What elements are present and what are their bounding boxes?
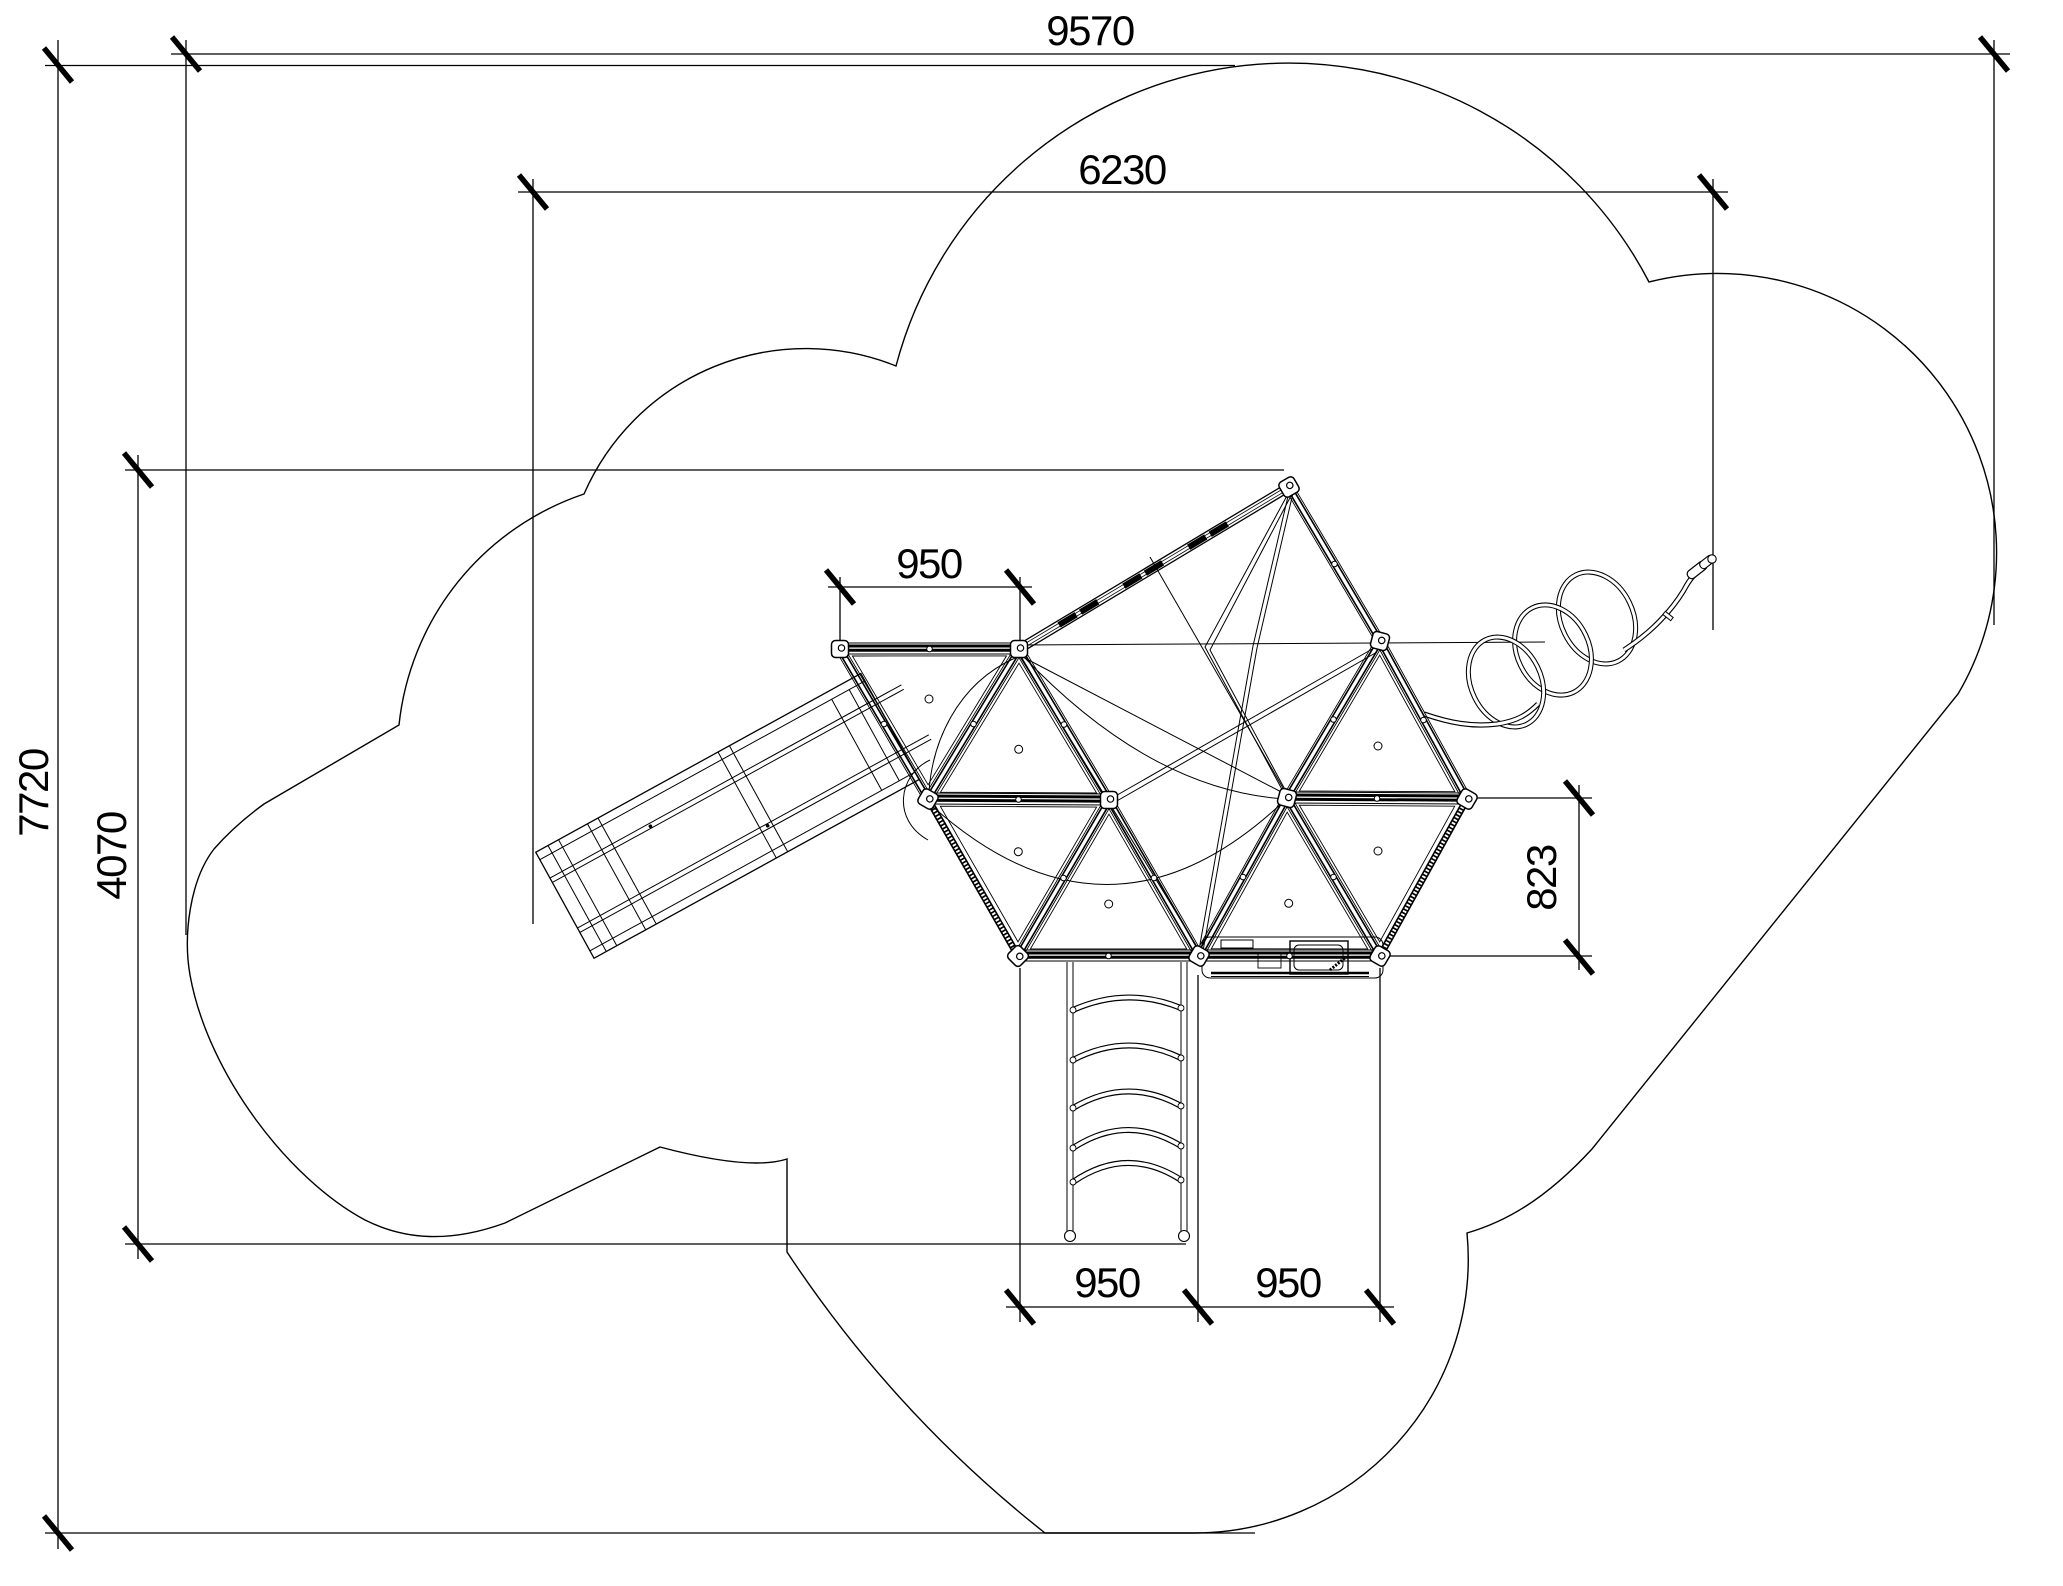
svg-text:950: 950 [1074,1259,1140,1306]
svg-text:6230: 6230 [1078,146,1166,193]
svg-text:4070: 4070 [88,812,135,900]
svg-text:950: 950 [1255,1259,1321,1306]
svg-text:9570: 9570 [1046,7,1134,54]
svg-text:823: 823 [1518,845,1565,911]
svg-text:7720: 7720 [10,749,57,837]
svg-text:950: 950 [896,540,962,587]
